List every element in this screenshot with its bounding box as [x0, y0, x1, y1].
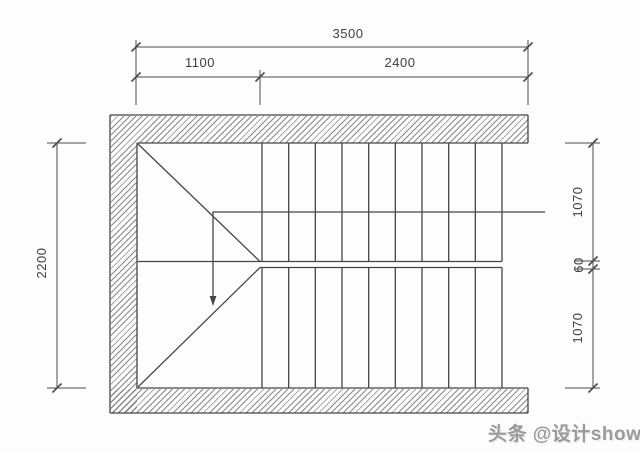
dim-label-2200: 2200 [35, 235, 49, 291]
dim-label-2400: 2400 [373, 56, 427, 70]
dim-label-3500: 3500 [318, 27, 378, 41]
dim-label-1070-upper: 1070 [571, 174, 585, 230]
stair-drawing-linework [0, 0, 640, 451]
stair-plan-canvas: 3500 1100 2400 2200 1070 60 1070 头条 @设计s… [0, 0, 640, 451]
walkline [213, 212, 545, 297]
watermark-text: 头条 @设计show [488, 419, 638, 445]
dim-label-60: 60 [572, 250, 586, 280]
down-direction-arrow [210, 296, 217, 306]
dim-label-1100: 1100 [173, 56, 227, 70]
dimension-tick-marks [53, 43, 598, 393]
landing-diagonal-lower [138, 268, 260, 388]
tread-lines [262, 144, 502, 388]
landing-diagonal-upper [138, 144, 260, 262]
dim-label-1070-lower: 1070 [571, 300, 585, 356]
